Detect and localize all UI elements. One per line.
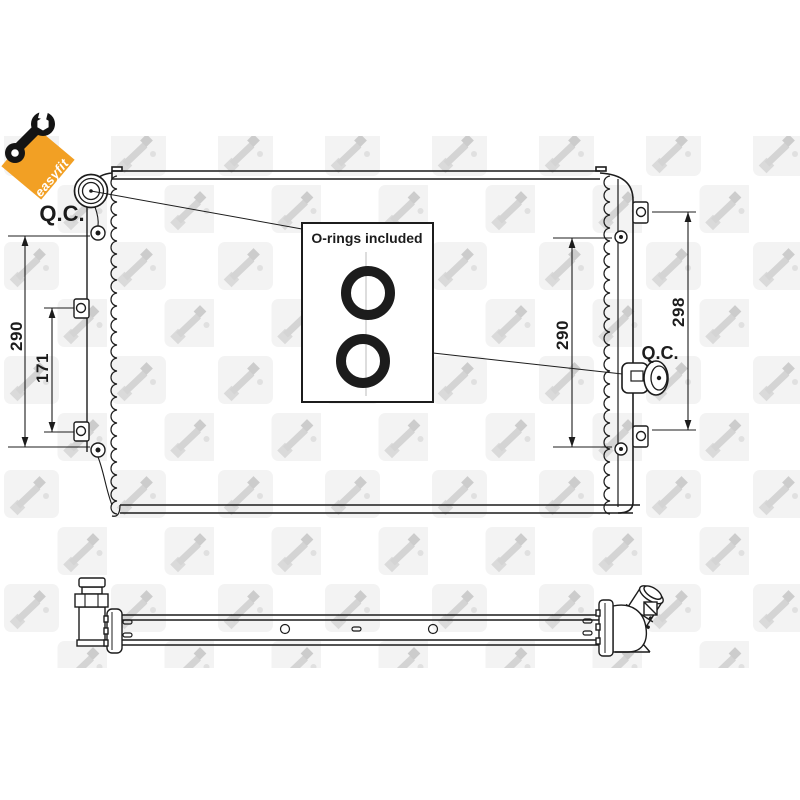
dim-text-left-outer: 290 (7, 321, 26, 351)
qc-fitting-right (622, 361, 668, 395)
product-image: O-rings included 290 171 290 298 Q.C. (0, 0, 800, 800)
radiator-technical-drawing: O-rings included 290 171 290 298 Q.C. (0, 0, 800, 800)
qc-label-right: Q.C. (641, 343, 678, 363)
grommet-right-lower (615, 443, 627, 455)
o-rings-note-title: O-rings included (311, 230, 422, 246)
o-rings-note-box: O-rings included (302, 223, 433, 402)
drain-plug (91, 443, 105, 457)
dim-text-right-outer: 298 (669, 297, 688, 327)
grommet-left-upper (91, 226, 105, 240)
mounting-tab-right-lower (633, 426, 648, 447)
mounting-tab-left-lower (74, 422, 89, 441)
qc-label-left: Q.C. (39, 201, 84, 226)
dim-text-right-inner: 290 (553, 320, 572, 350)
dim-text-left-inner: 171 (33, 353, 52, 383)
grommet-right-upper (615, 231, 627, 243)
mounting-tab-right-upper (633, 202, 648, 223)
mounting-tab-left-upper (74, 299, 89, 318)
